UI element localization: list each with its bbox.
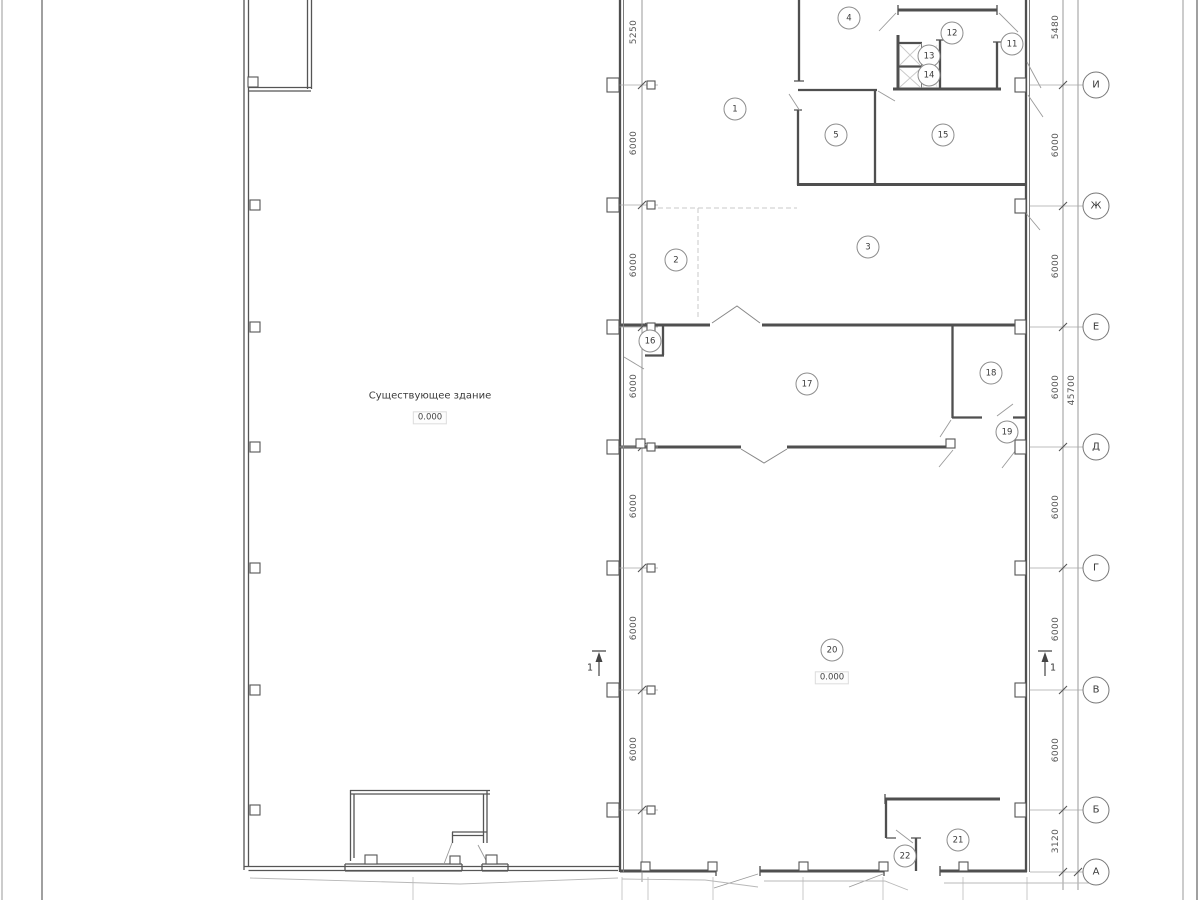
axis-label-bubble: Г: [1083, 555, 1110, 582]
room-number-bubble: 21: [947, 829, 970, 852]
dimension-label-right: 6000: [1051, 738, 1061, 763]
room-number-bubble: 4: [838, 7, 861, 30]
existing-building-label: Существующее здание: [369, 391, 491, 402]
room-number-bubble: 14: [918, 64, 941, 87]
room-number-bubble: 3: [857, 236, 880, 259]
existing-building-elevation-mark: 0.000: [413, 411, 447, 424]
hall-elevation-mark: 0.000: [815, 671, 849, 684]
section-number-right: 1: [1050, 663, 1056, 674]
dimension-label-left: 6000: [629, 737, 639, 762]
axis-label-bubble: В: [1083, 677, 1110, 704]
dimension-label-left: 6000: [629, 131, 639, 156]
axis-label-bubble: Д: [1083, 434, 1110, 461]
section-number-left: 1: [587, 663, 593, 674]
dimension-label-right: 6000: [1051, 254, 1061, 279]
room-number-bubble: 1: [724, 98, 747, 121]
room-number-bubble: 5: [825, 124, 848, 147]
axis-label-bubble: А: [1083, 859, 1110, 886]
dimension-label-right: 6000: [1051, 375, 1061, 400]
room-number-bubble: 16: [639, 330, 662, 353]
room-number-bubble: 18: [980, 362, 1003, 385]
room-number-bubble: 19: [996, 421, 1019, 444]
axis-label-bubble: Е: [1083, 314, 1110, 341]
dimension-label-left: 6000: [629, 616, 639, 641]
room-number-bubble: 15: [932, 124, 955, 147]
dimension-label-right: 6000: [1051, 133, 1061, 158]
dimension-label-right: 3120: [1051, 829, 1061, 854]
dimension-total-label: 45700: [1067, 375, 1077, 406]
room-number-bubble: 11: [1001, 33, 1024, 56]
room-number-bubble: 2: [665, 249, 688, 272]
dimension-label-right: 6000: [1051, 617, 1061, 642]
dimension-label-right: 5480: [1051, 15, 1061, 40]
axis-label-bubble: Ж: [1083, 193, 1110, 220]
room-number-bubble: 22: [894, 845, 917, 868]
annotation-overlay: Существующее здание 0.000 0.000 1 1 1234…: [0, 0, 1200, 900]
dimension-label-right: 6000: [1051, 495, 1061, 520]
drawing-sheet: Существующее здание 0.000 0.000 1 1 1234…: [0, 0, 1200, 900]
dimension-label-left: 6000: [629, 374, 639, 399]
dimension-label-left: 5250: [629, 20, 639, 45]
room-number-bubble: 17: [796, 373, 819, 396]
room-number-bubble: 12: [941, 22, 964, 45]
dimension-label-left: 6000: [629, 494, 639, 519]
axis-label-bubble: Б: [1083, 797, 1110, 824]
room-number-bubble: 20: [821, 639, 844, 662]
axis-label-bubble: И: [1083, 72, 1110, 99]
dimension-label-left: 6000: [629, 253, 639, 278]
